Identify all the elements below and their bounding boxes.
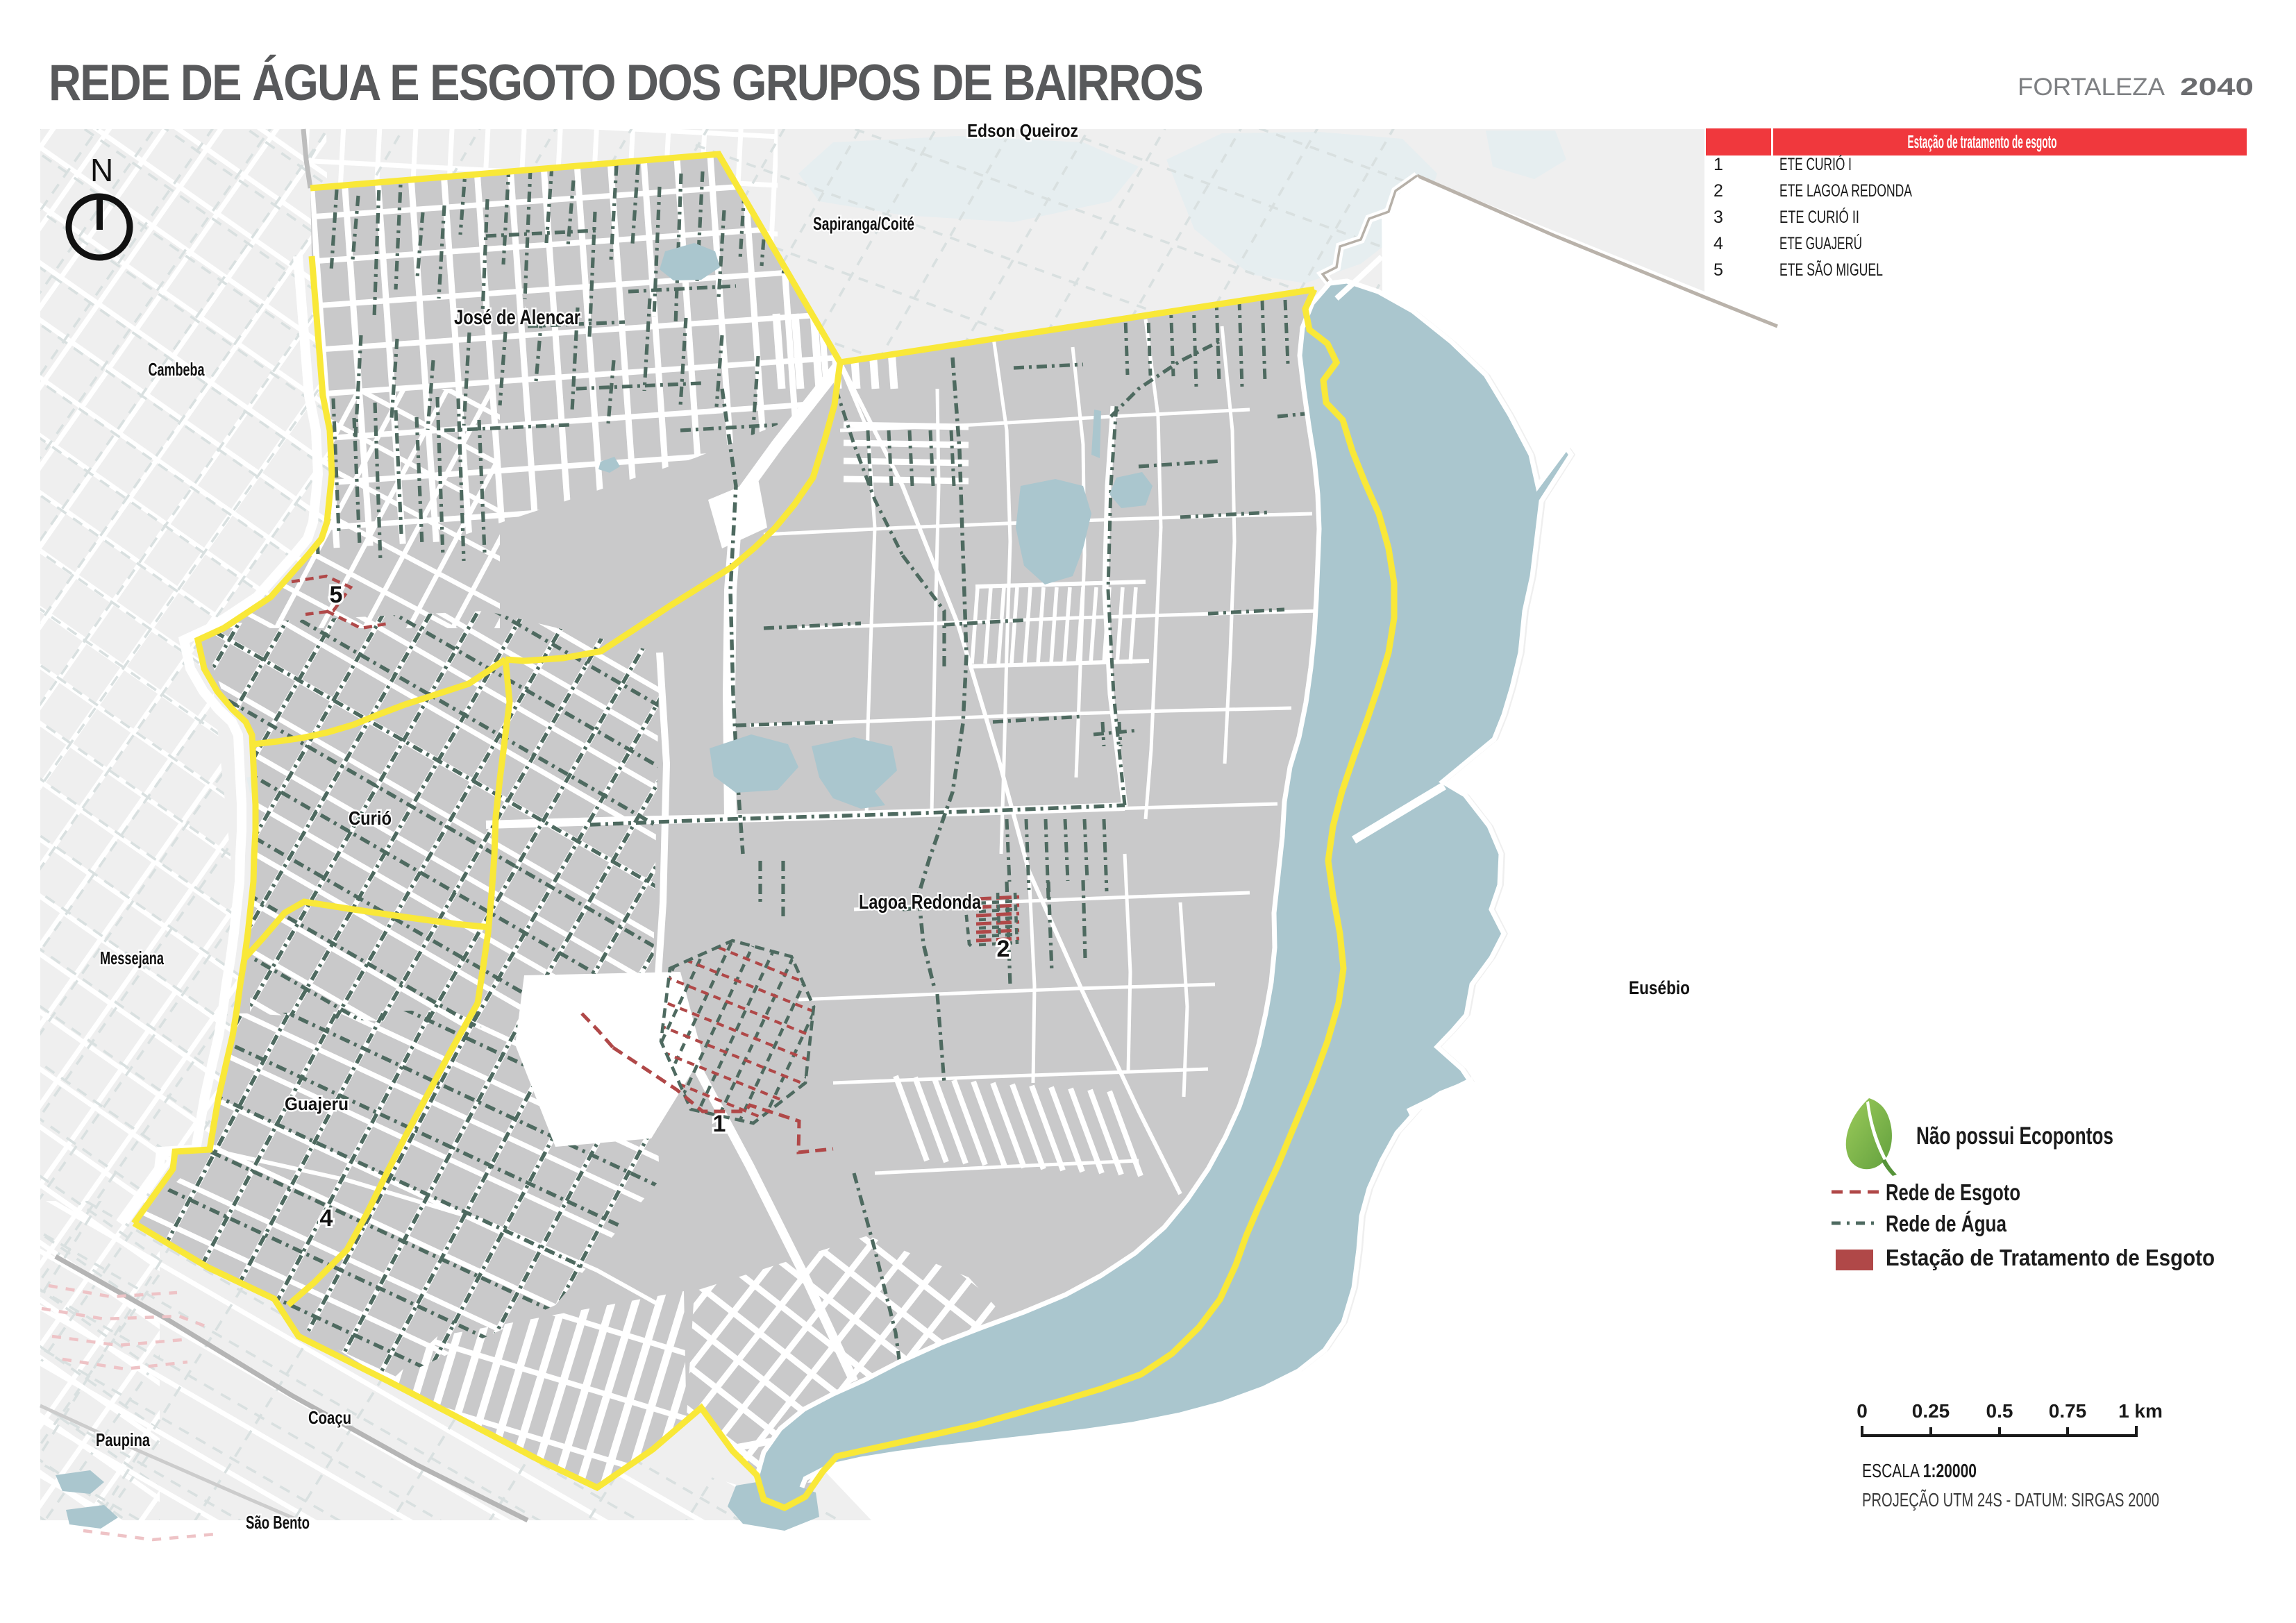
svg-text:0: 0	[1857, 1400, 1868, 1422]
svg-text:2: 2	[1713, 181, 1723, 201]
svg-text:1: 1	[1713, 155, 1723, 174]
svg-text:ETE GUAJERÚ: ETE GUAJERÚ	[1779, 233, 1862, 253]
svg-text:1 km: 1 km	[2118, 1400, 2163, 1422]
svg-text:Eusébio: Eusébio	[1629, 977, 1690, 998]
svg-text:ETE SÃO MIGUEL: ETE SÃO MIGUEL	[1779, 260, 1883, 280]
svg-text:Rede de Esgoto: Rede de Esgoto	[1886, 1179, 2020, 1205]
svg-text:ETE CURIÓ II: ETE CURIÓ II	[1779, 207, 1859, 227]
svg-text:Messejana: Messejana	[100, 948, 164, 968]
svg-text:José de Alencar: José de Alencar	[454, 306, 580, 329]
svg-text:ETE CURIÓ I: ETE CURIÓ I	[1779, 154, 1852, 174]
svg-text:ESCALA 1:20000: ESCALA 1:20000	[1862, 1460, 1977, 1481]
svg-text:Rede de Água: Rede de Água	[1886, 1211, 2007, 1236]
svg-text:PROJEÇÃO UTM 24S - DATUM: SIRG: PROJEÇÃO UTM 24S - DATUM: SIRGAS 2000	[1862, 1489, 2159, 1511]
svg-text:Estação de tratamento de esgot: Estação de tratamento de esgoto	[1908, 131, 2057, 152]
svg-text:Guajeru: Guajeru	[285, 1093, 349, 1114]
svg-text:Lagoa Redonda: Lagoa Redonda	[859, 891, 982, 914]
svg-text:São Bento: São Bento	[246, 1512, 310, 1533]
svg-text:0.25: 0.25	[1912, 1400, 1950, 1422]
svg-text:Sapiranga/Coité: Sapiranga/Coité	[813, 213, 914, 234]
svg-text:Não possui Ecopontos: Não possui Ecopontos	[1916, 1122, 2113, 1150]
svg-text:N: N	[90, 152, 113, 188]
svg-text:ETE LAGOA REDONDA: ETE LAGOA REDONDA	[1779, 181, 1912, 201]
svg-text:0.5: 0.5	[1986, 1400, 2013, 1422]
svg-text:Coaçu: Coaçu	[308, 1407, 351, 1428]
svg-text:2: 2	[997, 936, 1010, 962]
svg-text:Edson Queiroz: Edson Queiroz	[967, 120, 1078, 141]
svg-text:4: 4	[320, 1205, 333, 1231]
svg-text:2040: 2040	[2180, 74, 2254, 101]
svg-text:0.75: 0.75	[2049, 1400, 2087, 1422]
svg-text:Estação de Tratamento de Esgot: Estação de Tratamento de Esgoto	[1886, 1245, 2215, 1270]
svg-text:Curió: Curió	[349, 807, 392, 829]
svg-text:FORTALEZA: FORTALEZA	[2018, 74, 2165, 101]
svg-text:REDE DE ÁGUA E ESGOTO DOS GRUP: REDE DE ÁGUA E ESGOTO DOS GRUPOS DE BAIR…	[49, 55, 1203, 111]
svg-text:1: 1	[713, 1111, 726, 1137]
svg-text:5: 5	[330, 582, 343, 608]
svg-text:4: 4	[1713, 234, 1723, 253]
svg-text:3: 3	[1713, 208, 1723, 227]
svg-text:5: 5	[1713, 260, 1723, 280]
svg-text:Cambeba: Cambeba	[149, 359, 205, 380]
svg-text:Paupina: Paupina	[96, 1429, 150, 1450]
